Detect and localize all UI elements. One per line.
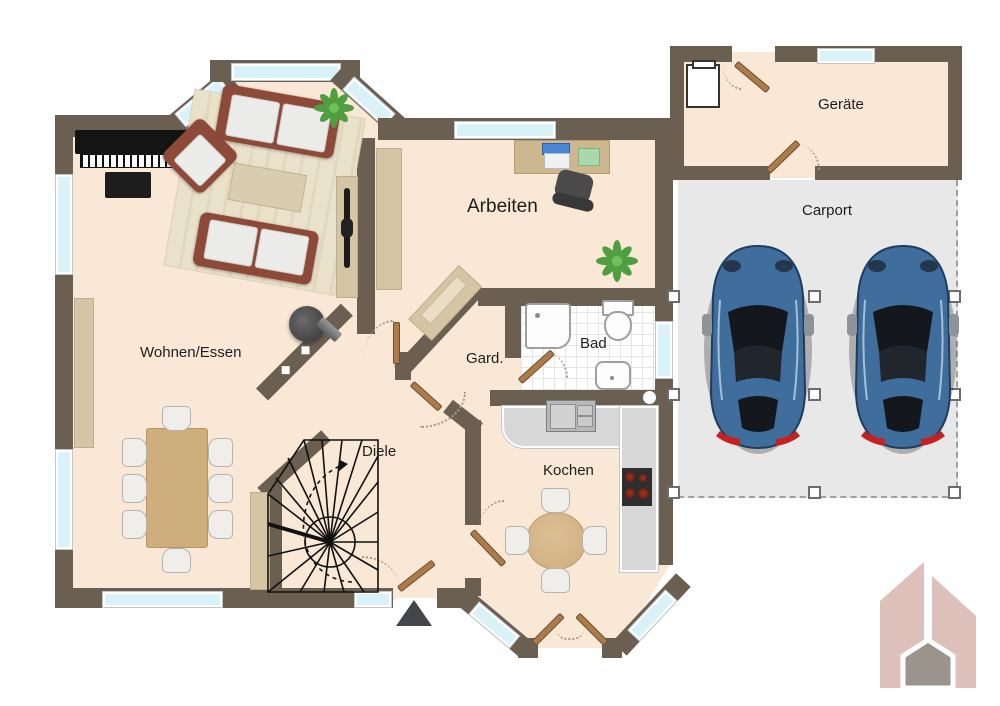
burner bbox=[625, 472, 635, 482]
cooktop-icon bbox=[622, 468, 652, 506]
wall-living-office bbox=[357, 138, 375, 334]
plant-icon bbox=[596, 240, 638, 282]
sideboard-icon bbox=[74, 298, 94, 448]
carport-post bbox=[667, 486, 680, 499]
room-label-kitchen: Kochen bbox=[543, 462, 594, 479]
dining-chair-icon bbox=[208, 474, 233, 503]
burner bbox=[638, 488, 649, 499]
dining-chair-icon bbox=[162, 548, 191, 573]
kitchen-chair-icon bbox=[541, 568, 570, 593]
window-dining-bottom bbox=[103, 592, 222, 607]
wall-column-dot bbox=[643, 391, 656, 404]
glass-block-icon bbox=[301, 346, 309, 354]
room-label-utility: Geräte bbox=[818, 96, 864, 113]
window-left-lower bbox=[56, 450, 72, 549]
kitchen-chair-icon bbox=[541, 488, 570, 513]
window-office-top bbox=[455, 122, 555, 138]
sink-basin bbox=[550, 404, 576, 429]
carport-post bbox=[808, 486, 821, 499]
floor-plan: Wohnen/Essen Arbeiten Gard. Bad Diele Ko… bbox=[0, 0, 1000, 706]
kitchen-sink-icon bbox=[546, 400, 596, 432]
machine-panel bbox=[692, 60, 716, 69]
shower-drain bbox=[535, 313, 540, 318]
utility-wall-left bbox=[670, 46, 684, 180]
room-label-hall: Diele bbox=[362, 443, 396, 460]
door-swing bbox=[556, 612, 584, 640]
room-label-carport: Carport bbox=[802, 202, 852, 219]
utility-wall-bottom-west bbox=[670, 166, 770, 180]
sink-drainer bbox=[577, 405, 593, 416]
house-logo-icon bbox=[876, 556, 980, 690]
window-bay-top bbox=[232, 64, 340, 80]
laptop-base bbox=[544, 153, 570, 169]
carport-post bbox=[667, 290, 680, 303]
sofa-cushion bbox=[225, 94, 281, 144]
dining-chair-icon bbox=[122, 474, 147, 503]
kitchen-chair-icon bbox=[582, 526, 607, 555]
carport-post bbox=[667, 388, 680, 401]
dining-chair-icon bbox=[208, 510, 233, 539]
office-shelf-icon bbox=[376, 148, 402, 290]
dining-chair-icon bbox=[122, 510, 147, 539]
sofa-cushion bbox=[203, 219, 258, 267]
sofa-cushion bbox=[254, 228, 309, 276]
round-table-icon bbox=[526, 512, 586, 570]
notepad-icon bbox=[578, 148, 600, 166]
carport-post bbox=[948, 486, 961, 499]
room-label-living: Wohnen/Essen bbox=[140, 344, 241, 361]
entrance-arrow-icon bbox=[396, 600, 432, 626]
car-icon bbox=[845, 240, 961, 456]
utility-wall-bottom-east bbox=[815, 166, 962, 180]
toilet-bowl bbox=[604, 311, 632, 341]
dining-table-icon bbox=[146, 428, 208, 548]
wall-bath-west bbox=[505, 288, 521, 358]
glass-block-icon bbox=[282, 366, 290, 374]
window-utility-top bbox=[818, 49, 874, 63]
window-bath-right bbox=[656, 322, 672, 378]
window-left-upper bbox=[56, 175, 72, 274]
utility-wall-right bbox=[948, 46, 962, 180]
car-icon bbox=[700, 240, 816, 456]
washing-machine-icon bbox=[686, 64, 720, 108]
burner bbox=[639, 474, 647, 482]
room-label-bath: Bad bbox=[580, 335, 607, 352]
piano-bench bbox=[105, 172, 151, 198]
room-label-wardrobe: Gard. bbox=[466, 350, 504, 367]
door-living-hall bbox=[393, 322, 400, 364]
wall-kitchen-west bbox=[465, 420, 481, 525]
wall-kitchen-west-bottom bbox=[465, 578, 481, 596]
kitchen-chair-icon bbox=[505, 526, 530, 555]
tv-stand bbox=[341, 218, 353, 238]
dining-chair-icon bbox=[122, 438, 147, 467]
shower-icon bbox=[525, 303, 571, 349]
basin-drain bbox=[610, 376, 614, 380]
room-label-office: Arbeiten bbox=[467, 196, 538, 218]
washbasin-icon bbox=[595, 361, 631, 390]
plant-icon bbox=[314, 88, 354, 128]
dining-chair-icon bbox=[162, 406, 191, 431]
burner bbox=[625, 488, 635, 498]
dining-chair-icon bbox=[208, 438, 233, 467]
sink-drainer bbox=[577, 416, 593, 427]
